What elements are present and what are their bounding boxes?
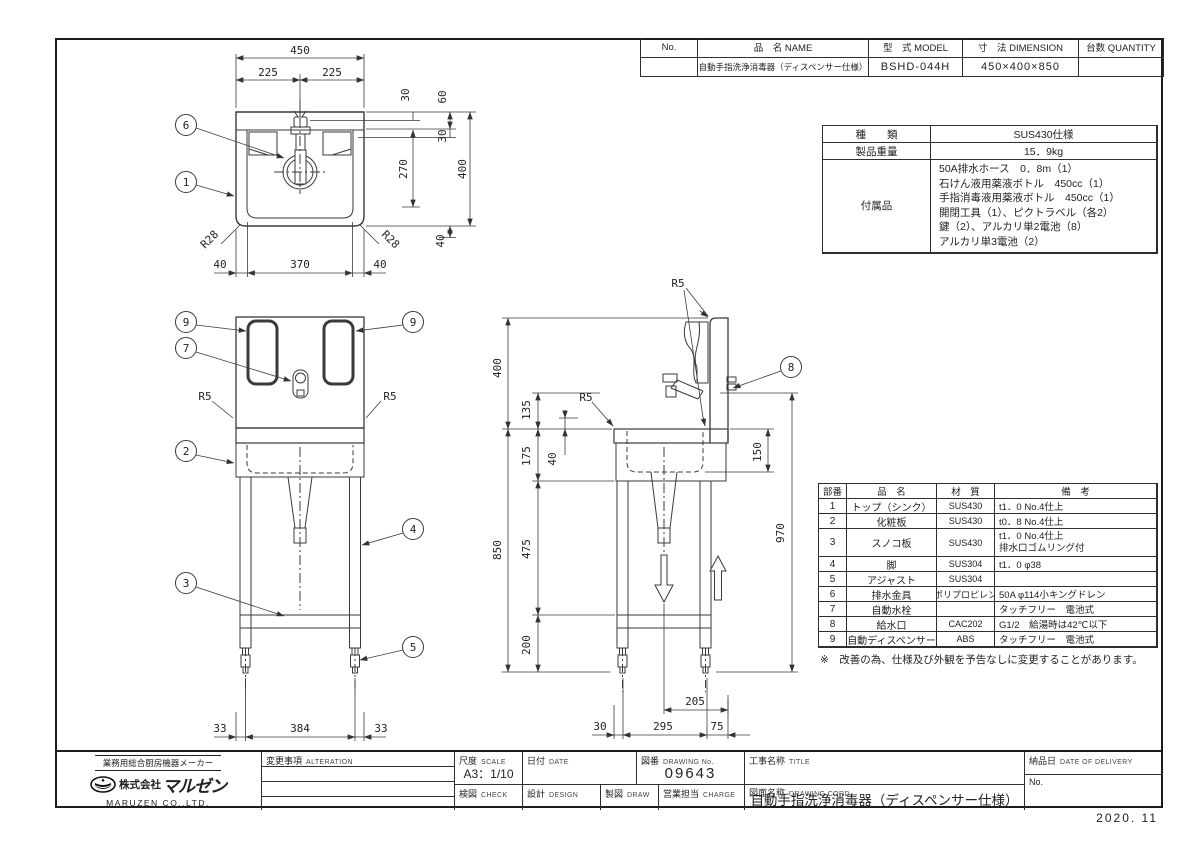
part-name: スノコ板 xyxy=(847,529,937,557)
spec-weight-value: 15．9kg xyxy=(931,143,1157,160)
check-label-en: CHECK xyxy=(481,792,508,799)
accessory-line: 50A排水ホース 0．8m（1） xyxy=(939,162,1078,177)
alteration-row-divider xyxy=(262,796,454,797)
parts-col-no: 部番 xyxy=(819,484,847,499)
part-remark: タッチフリー 電池式 xyxy=(995,602,1157,617)
parts-row: 7 自動水栓 タッチフリー 電池式 xyxy=(819,602,1157,617)
alteration-row-divider xyxy=(262,781,454,782)
product-name-value: 自動手指洗浄消毒器（ディスペンサー仕様） xyxy=(698,58,869,78)
no-cell: No. xyxy=(1025,775,1163,810)
part-no: 1 xyxy=(819,499,847,514)
part-no: 9 xyxy=(819,632,847,647)
accessory-line: 鍵（2）、アルカリ単2電池（8） xyxy=(939,220,1087,235)
alteration-cell: 変更事項ALTERATION xyxy=(262,752,455,810)
charge-cell: 営業担当CHARGE xyxy=(659,785,745,810)
part-no: 2 xyxy=(819,514,847,529)
part-material: CAC202 xyxy=(937,617,995,632)
part-name: 排水金具 xyxy=(847,587,937,602)
parts-col-material: 材 質 xyxy=(937,484,995,499)
part-no: 4 xyxy=(819,557,847,572)
draw-label: 製図 xyxy=(605,789,623,799)
header-no-label: No. xyxy=(641,38,698,58)
maruzen-mark-icon xyxy=(90,776,116,793)
parts-row: 4 脚 SUS304 t1．0 φ38 xyxy=(819,557,1157,572)
construction-title-label-en: TITLE xyxy=(789,759,810,766)
part-name: トップ（シンク） xyxy=(847,499,937,514)
part-name: 給水口 xyxy=(847,617,937,632)
accessory-line: 手指消毒液用薬液ボトル 450cc（1） xyxy=(939,191,1120,206)
quantity-value xyxy=(1079,58,1164,78)
parts-row: 2 化粧板 SUS430 t0．8 No.4仕上 xyxy=(819,514,1157,529)
header-quantity-label: 台数 QUANTITY xyxy=(1079,38,1164,58)
part-name: 自動ディスペンサー xyxy=(847,632,937,647)
date-stamp: 2020. 11 xyxy=(1040,811,1158,825)
part-material xyxy=(937,602,995,617)
delivery-label: 納品日 xyxy=(1029,756,1056,766)
header-no-value xyxy=(641,58,698,78)
part-name: 自動水栓 xyxy=(847,602,937,617)
disclaimer-note: ※ 改善の為、仕様及び外観を予告なしに変更することがあります。 xyxy=(820,652,1143,667)
parts-row: 5 アジャスト SUS304 xyxy=(819,572,1157,587)
part-no: 5 xyxy=(819,572,847,587)
parts-col-remark: 備 考 xyxy=(995,484,1157,499)
parts-col-name: 品 名 xyxy=(847,484,937,499)
delivery-label-en: DATE OF DELIVERY xyxy=(1060,759,1133,766)
model-value: BSHD-044H xyxy=(869,58,963,78)
part-material: SUS304 xyxy=(937,557,995,572)
alteration-row-divider xyxy=(262,766,454,767)
header-model-label: 型 式 MODEL xyxy=(869,38,963,58)
company-name-logo: マルゼン xyxy=(162,772,226,797)
parts-table: 部番 品 名 材 質 備 考 1 トップ（シンク） SUS430 t1．0 No… xyxy=(818,483,1158,648)
check-cell: 検図CHECK xyxy=(455,785,523,810)
dimension-value: 450×400×850 xyxy=(963,58,1079,78)
scale-value: A3：1/10 xyxy=(455,765,522,782)
spec-table: 種 類 SUS430仕様 製品重量 15．9kg 付属品 50A排水ホース 0．… xyxy=(822,125,1158,254)
design-label: 設計 xyxy=(527,789,545,799)
construction-title-label: 工事名称 xyxy=(749,756,785,766)
charge-label: 営業担当 xyxy=(663,789,699,799)
spec-weight-label: 製品重量 xyxy=(823,143,931,160)
part-material: SUS430 xyxy=(937,499,995,514)
part-no: 7 xyxy=(819,602,847,617)
charge-label-en: CHARGE xyxy=(703,792,735,799)
parts-row: 3 スノコ板 SUS430 t1．0 No.4仕上 排水口ゴムリング付 xyxy=(819,529,1157,557)
part-remark: t1．0 No.4仕上 排水口ゴムリング付 xyxy=(995,529,1157,557)
part-remark xyxy=(995,572,1157,587)
part-material: SUS430 xyxy=(937,514,995,529)
title-block: 業務用総合厨房機器メーカー 株式会社 マルゼン MARUZEN CO.,LTD.… xyxy=(55,750,1163,808)
alteration-label-en: ALTERATION xyxy=(306,759,353,766)
alteration-label: 変更事項 xyxy=(266,756,302,766)
design-cell: 設計DESIGN xyxy=(523,785,601,810)
design-label-en: DESIGN xyxy=(549,792,578,799)
date-label: 日付 xyxy=(527,756,545,766)
parts-header-row: 部番 品 名 材 質 備 考 xyxy=(819,484,1157,499)
part-remark: t1．0 No.4仕上 xyxy=(995,499,1157,514)
part-remark: タッチフリー 電池式 xyxy=(995,632,1157,647)
check-label: 検図 xyxy=(459,789,477,799)
drawing-no-value: 09643 xyxy=(637,765,744,782)
date-label-en: DATE xyxy=(549,759,569,766)
spec-kind-label: 種 類 xyxy=(823,126,931,143)
part-material: SUS430 xyxy=(937,529,995,557)
parts-row: 9 自動ディスペンサー ABS タッチフリー 電池式 xyxy=(819,632,1157,647)
part-material: ポリプロピレン xyxy=(937,587,995,602)
accessory-line: 石けん液用薬液ボトル 450cc（1） xyxy=(939,177,1109,192)
part-no: 8 xyxy=(819,617,847,632)
header-name-label: 品 名 NAME xyxy=(698,38,869,58)
drawing-name-cell: 図面名称DRAWING CORD 自動手指洗浄消毒器（ディスペンサー仕様） xyxy=(745,785,1025,810)
spec-kind-value: SUS430仕様 xyxy=(931,126,1157,143)
part-name: アジャスト xyxy=(847,572,937,587)
accessory-line: アルカリ単3電池（2） xyxy=(939,235,1045,250)
spec-accessories-list: 50A排水ホース 0．8m（1） 石けん液用薬液ボトル 450cc（1） 手指消… xyxy=(931,160,1157,253)
drawing-no-cell: 図番DRAWING No. 09643 xyxy=(637,752,745,785)
part-remark: t0．8 No.4仕上 xyxy=(995,514,1157,529)
part-no: 6 xyxy=(819,587,847,602)
spec-accessories-label: 付属品 xyxy=(823,160,931,253)
part-remark: t1．0 φ38 xyxy=(995,557,1157,572)
part-name: 化粧板 xyxy=(847,514,937,529)
delivery-date-cell: 納品日DATE OF DELIVERY xyxy=(1025,752,1163,775)
company-name-prefix: 株式会社 xyxy=(119,777,161,792)
header-dimension-label: 寸 法 DIMENSION xyxy=(963,38,1079,58)
construction-title-cell: 工事名称TITLE xyxy=(745,752,1025,785)
part-material: ABS xyxy=(937,632,995,647)
part-remark: 50A φ114小キングドレン xyxy=(995,587,1157,602)
part-name: 脚 xyxy=(847,557,937,572)
part-remark: G1/2 給湯時は42℃以下 xyxy=(995,617,1157,632)
parts-row: 1 トップ（シンク） SUS430 t1．0 No.4仕上 xyxy=(819,499,1157,514)
no-label: No. xyxy=(1029,777,1043,787)
scale-cell: 尺度SCALE A3：1/10 xyxy=(455,752,523,785)
parts-row: 8 給水口 CAC202 G1/2 給湯時は42℃以下 xyxy=(819,617,1157,632)
draw-cell: 製図DRAW xyxy=(601,785,659,810)
company-logo: 業務用総合厨房機器メーカー 株式会社 マルゼン MARUZEN CO.,LTD. xyxy=(55,752,262,810)
accessory-line: 開閉工具（1）、ピクトラベル（各2） xyxy=(939,206,1113,221)
draw-label-en: DRAW xyxy=(627,792,650,799)
drawing-name-value: 自動手指洗浄消毒器（ディスペンサー仕様） xyxy=(745,789,1024,809)
part-material: SUS304 xyxy=(937,572,995,587)
drawing-sheet: { "stamp": "2020. 11", "header_table": {… xyxy=(0,0,1200,848)
part-no: 3 xyxy=(819,529,847,557)
date-cell: 日付DATE xyxy=(523,752,637,785)
company-name-en: MARUZEN CO.,LTD. xyxy=(106,798,210,808)
company-industry-line: 業務用総合厨房機器メーカー xyxy=(95,755,222,771)
parts-row: 6 排水金具 ポリプロピレン 50A φ114小キングドレン xyxy=(819,587,1157,602)
header-table: No. 品 名 NAME 型 式 MODEL 寸 法 DIMENSION 台数 … xyxy=(640,38,1163,77)
